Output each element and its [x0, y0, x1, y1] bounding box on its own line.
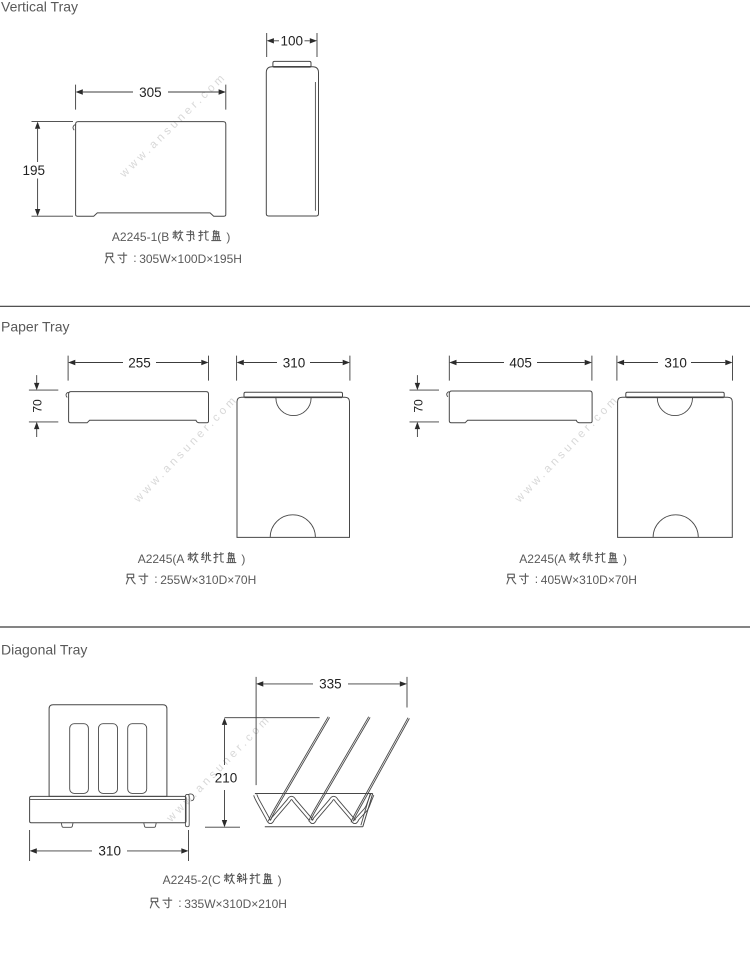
svg-text:A2245(A: A2245(A — [138, 552, 185, 566]
svg-text::: : — [133, 251, 136, 265]
svg-text:Vertical Tray: Vertical Tray — [1, 0, 78, 15]
svg-text::: : — [154, 572, 157, 586]
svg-text:www.ansuner.com: www.ansuner.com — [164, 713, 274, 826]
svg-text:70: 70 — [31, 399, 45, 413]
svg-text::: : — [178, 896, 181, 910]
svg-text:Diagonal Tray: Diagonal Tray — [1, 642, 87, 658]
svg-text:310: 310 — [283, 355, 306, 370]
svg-text:210: 210 — [215, 770, 238, 785]
svg-text:A2245-2(C: A2245-2(C — [163, 873, 221, 887]
svg-text:305: 305 — [139, 85, 162, 100]
svg-text:310: 310 — [664, 355, 687, 370]
svg-text:305W×100D×195H: 305W×100D×195H — [139, 252, 242, 266]
svg-text:100: 100 — [281, 34, 304, 49]
svg-text:Paper Tray: Paper Tray — [1, 319, 69, 335]
svg-text:335W×310D×210H: 335W×310D×210H — [184, 897, 287, 911]
svg-text:A2245-1(B: A2245-1(B — [112, 230, 169, 244]
svg-text:335: 335 — [319, 677, 342, 692]
svg-text:www.ansuner.com: www.ansuner.com — [512, 393, 622, 506]
svg-text:70: 70 — [411, 399, 425, 413]
svg-text:310: 310 — [98, 844, 121, 859]
svg-text:www.ansuner.com: www.ansuner.com — [117, 70, 229, 180]
svg-text:www.ansuner.com: www.ansuner.com — [131, 393, 241, 506]
svg-text:195: 195 — [23, 163, 46, 178]
svg-text:405W×310D×70H: 405W×310D×70H — [541, 573, 637, 587]
svg-text:255W×310D×70H: 255W×310D×70H — [160, 573, 256, 587]
svg-text:405: 405 — [509, 355, 532, 370]
svg-text:): ) — [241, 552, 245, 566]
svg-text:): ) — [278, 873, 282, 887]
svg-text:A2245(A: A2245(A — [519, 552, 566, 566]
svg-text:255: 255 — [128, 355, 151, 370]
svg-text::: : — [535, 572, 538, 586]
svg-text:): ) — [226, 230, 230, 244]
svg-text:): ) — [623, 552, 627, 566]
